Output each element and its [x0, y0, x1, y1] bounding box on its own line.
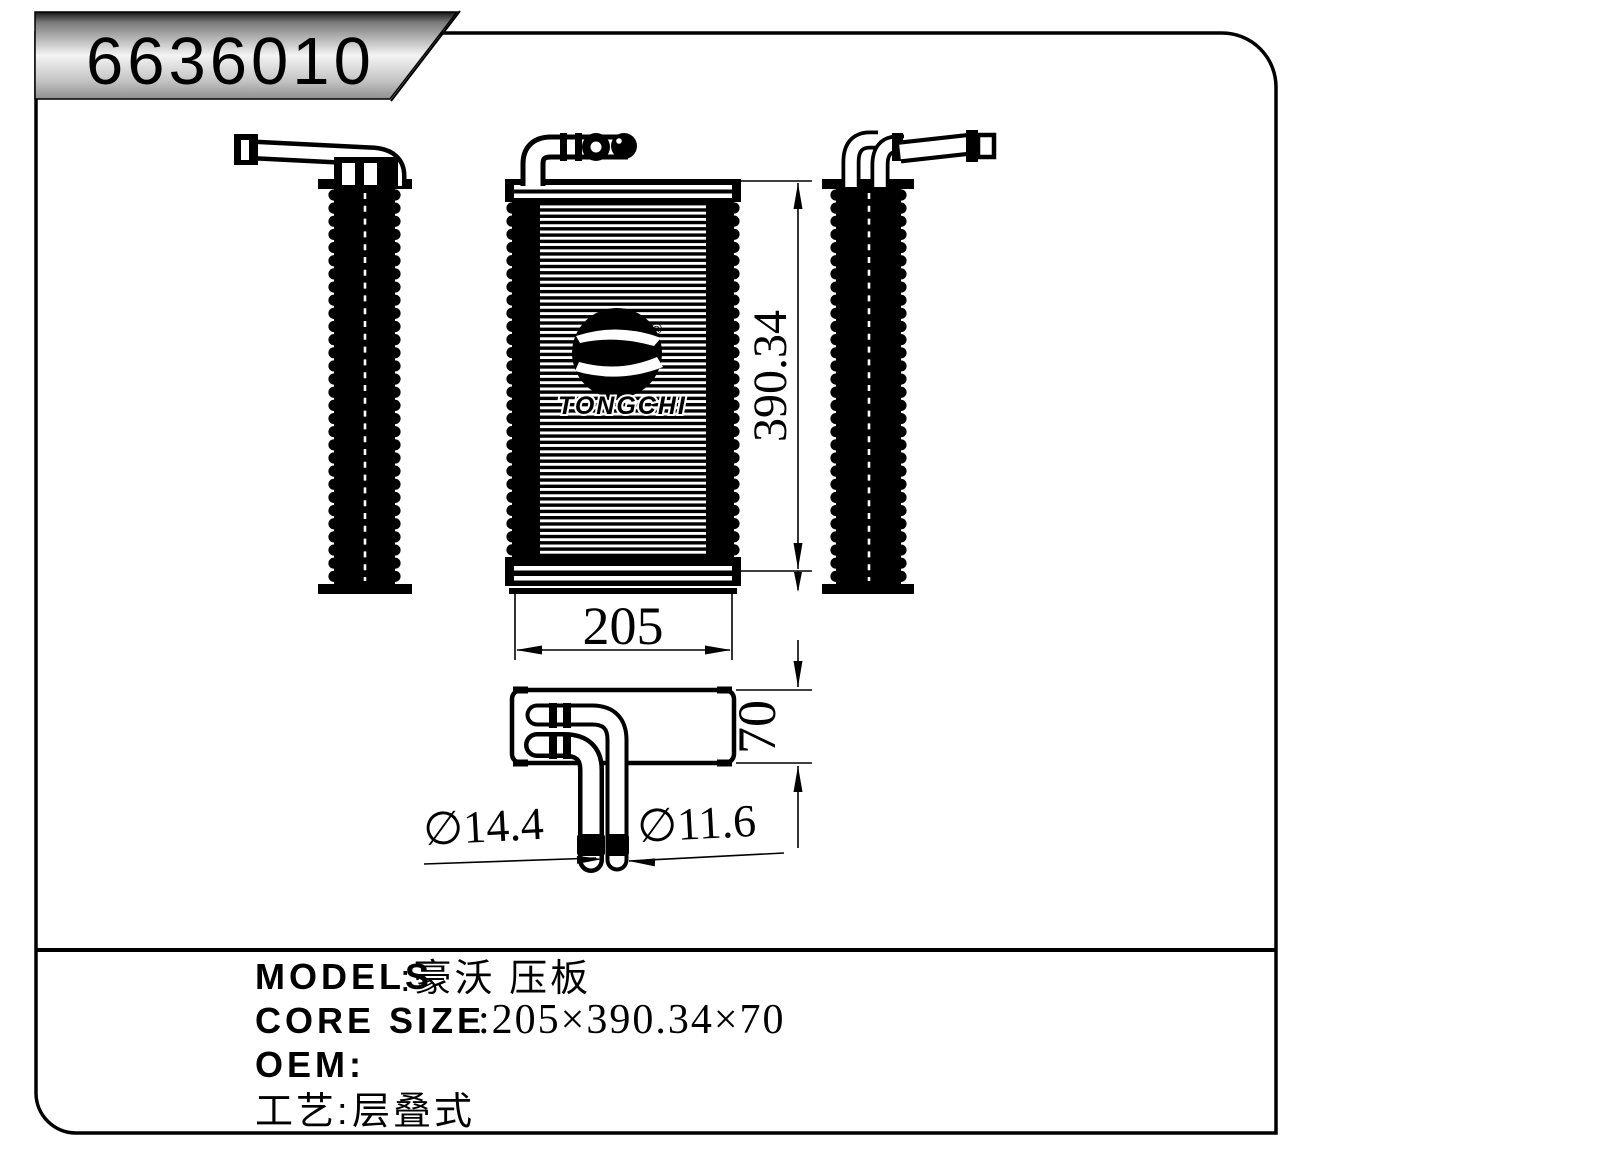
pipe-end-fitting-small [606, 834, 629, 856]
logo-disc [572, 308, 662, 398]
front-view-pipe [533, 133, 637, 186]
dim-width-text: 205 [583, 596, 664, 656]
models-value: :豪沃 压板 [400, 958, 591, 1000]
core-size-label: CORE SIZE [255, 1000, 485, 1041]
view-left-side [234, 134, 412, 594]
view-front: ® TONGCHI [505, 133, 741, 594]
right-pipe-fitting-end [978, 135, 994, 157]
left-view-core [328, 189, 400, 584]
front-view-bottom-plate [505, 557, 741, 586]
drawing-sheet: 6636010 [0, 0, 1614, 1152]
dim-pipe-small-text: ∅11.6 [636, 795, 757, 852]
dim-height-text: 390.34 [744, 310, 797, 442]
registered-mark: ® [651, 321, 662, 338]
front-pipe-port-plug [611, 133, 637, 159]
pipe-end-fitting-large [577, 834, 605, 856]
part-number: 6636010 [86, 24, 375, 99]
left-view-bottom-plate [318, 584, 412, 594]
process-value: 层叠式 [352, 1091, 475, 1133]
right-view-pipes [851, 130, 994, 187]
left-view-pipe [234, 134, 398, 189]
view-right-side [822, 130, 994, 594]
leader-large-pipe [424, 858, 596, 864]
logo-brand-text: TONGCHI [558, 392, 687, 420]
dim-pipe-large-text: ∅14.4 [422, 798, 545, 855]
right-view-top-plate [822, 179, 914, 189]
dim-depth-text: 70 [727, 700, 787, 754]
drawing-canvas: 6636010 [0, 0, 1614, 1152]
oem-label: OEM: [255, 1044, 365, 1085]
right-view-bottom-plate [822, 584, 914, 594]
title-block: 6636010 [35, 11, 460, 101]
process-label: 工艺: [255, 1091, 351, 1133]
info-block: MODELS :豪沃 压板 CORE SIZE :205×390.34×70 O… [255, 956, 786, 1133]
core-size-value: :205×390.34×70 [478, 997, 786, 1043]
right-view-core [830, 189, 906, 584]
brand-logo: ® TONGCHI [558, 308, 687, 420]
